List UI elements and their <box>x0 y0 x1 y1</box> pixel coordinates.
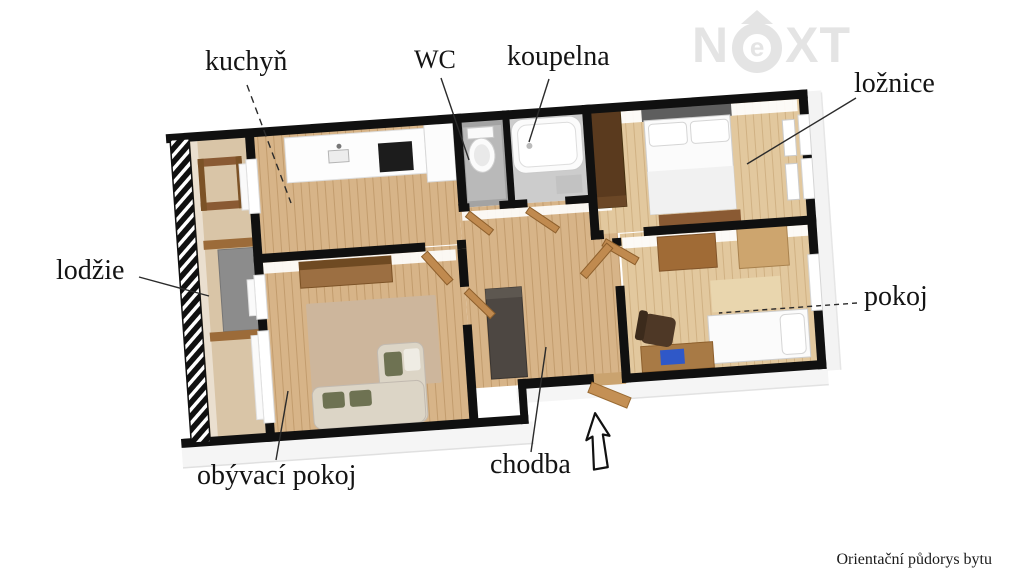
fridge <box>424 122 457 182</box>
logo-letter-n: N <box>692 20 729 70</box>
floor-plan-image: kuchyň WC koupelna ložnice lodžie pokoj … <box>0 0 1024 575</box>
toilet-tank <box>467 126 494 139</box>
chest <box>737 225 790 268</box>
room-label-kuchyn: kuchyň <box>205 47 287 76</box>
pillow <box>780 313 807 355</box>
logo-ring: e <box>732 23 782 73</box>
bath-mat <box>556 174 583 194</box>
sink <box>328 150 349 163</box>
radiator <box>785 163 799 200</box>
roof-triangle-icon <box>741 10 773 24</box>
next-logo: N e XT <box>692 16 851 74</box>
cooktop <box>378 141 414 172</box>
room-label-loznice: ložnice <box>854 69 935 98</box>
pillow <box>383 351 403 376</box>
attribution-text: Orientační půdorys bytu <box>836 551 992 569</box>
logo-letter-e: e <box>750 34 764 60</box>
room-label-chodba: chodba <box>490 450 571 479</box>
hallway-furniture <box>485 287 527 379</box>
dresser <box>657 233 717 271</box>
pillow <box>690 119 729 144</box>
entrance-arrow-icon <box>584 412 613 470</box>
room-label-lodzie: lodžie <box>56 256 124 285</box>
hall-wardrobe <box>485 287 527 379</box>
apartment-plan <box>160 88 845 467</box>
room-label-obyvaci-pokoj: obývací pokoj <box>197 461 356 490</box>
pillow <box>322 391 345 408</box>
logo-letters-xt: XT <box>785 20 851 70</box>
room-label-koupelna: koupelna <box>507 42 610 71</box>
pokoj-rug <box>710 276 782 313</box>
laptop <box>660 349 685 366</box>
pillow <box>349 390 372 407</box>
room-label-pokoj: pokoj <box>864 282 928 311</box>
room-label-wc: WC <box>414 46 456 73</box>
pillow <box>403 348 420 371</box>
pillow <box>648 122 687 147</box>
